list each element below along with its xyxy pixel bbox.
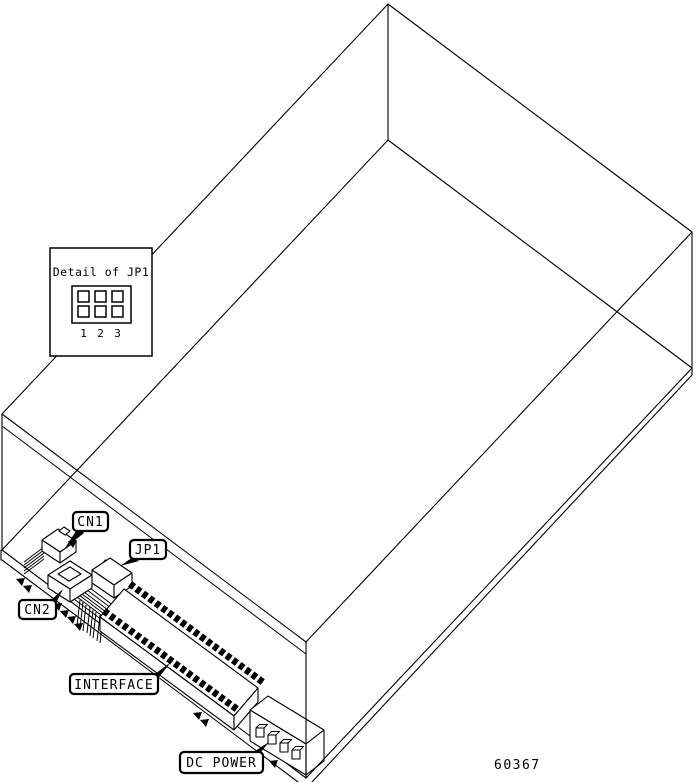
pin-indicator-arrow <box>269 760 278 768</box>
interface-connector <box>100 584 264 730</box>
cn2-connector <box>48 561 92 602</box>
enclosure-front-edges <box>306 368 692 782</box>
cn2-label: CN2 <box>24 603 50 618</box>
pin-indicator-arrow <box>200 719 209 727</box>
pin-indicator-arrow <box>74 623 83 631</box>
cn1-wires <box>24 547 44 574</box>
jumper-pin-number-2: 2 <box>97 327 104 340</box>
jp1-label: JP1 <box>135 543 161 558</box>
jumper-pin-number-3: 3 <box>114 327 121 340</box>
pin-indicator-arrow <box>193 712 202 720</box>
pin-indicator-arrow <box>16 578 25 586</box>
pin-indicator-arrow <box>23 585 32 593</box>
callout-dc-power: DC POWER <box>180 742 269 773</box>
figure-part-number: 60367 <box>494 758 541 773</box>
interface-label: INTERFACE <box>74 678 153 693</box>
pin-indicator-arrow <box>60 610 69 618</box>
diagram-page: CN1 JP1 CN2 INTERFACE DC POWER Detail of… <box>0 0 696 782</box>
cn1-label: CN1 <box>77 515 103 530</box>
diagram-canvas: CN1 JP1 CN2 INTERFACE DC POWER Detail of… <box>0 0 696 782</box>
pin-indicator-arrow <box>67 616 76 624</box>
callout-jp1: JP1 <box>120 540 166 566</box>
detail-inset: Detail of JP1 1 2 3 <box>50 248 152 356</box>
detail-inset-title: Detail of JP1 <box>53 265 150 279</box>
callout-cn1: CN1 <box>65 512 108 548</box>
dc-power-label: DC POWER <box>186 756 257 771</box>
jumper-pin-number-1: 1 <box>80 327 87 340</box>
